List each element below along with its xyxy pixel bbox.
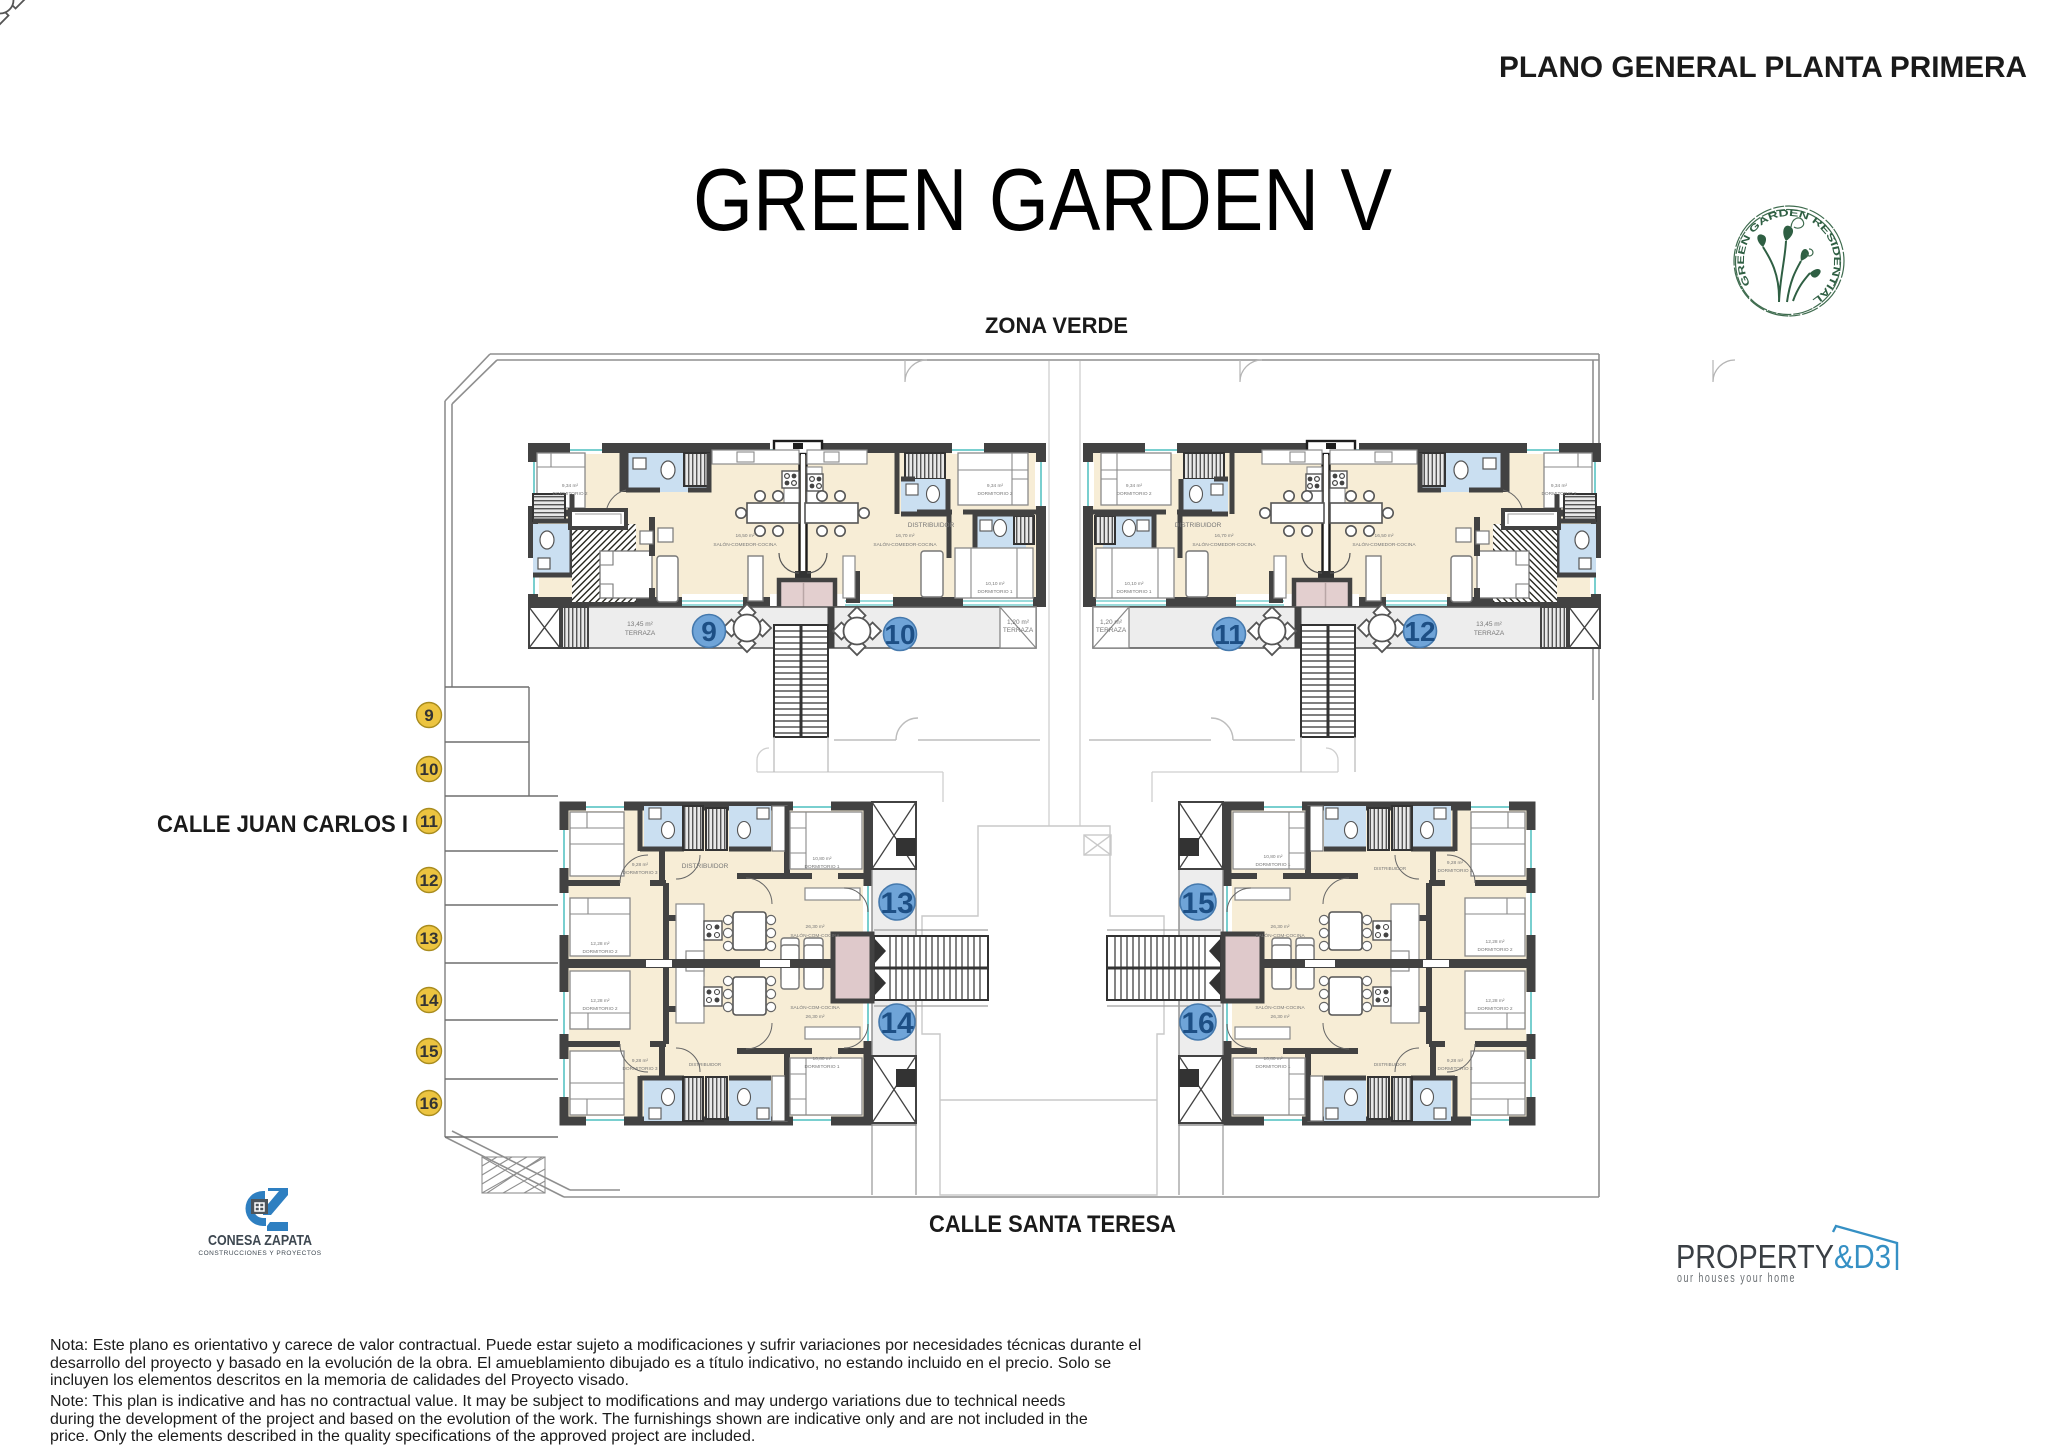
svg-text:10,80 m²: 10,80 m² xyxy=(813,1056,832,1062)
svg-text:DORMITORIO 1: DORMITORIO 1 xyxy=(1255,862,1290,868)
svg-text:10,10 m²: 10,10 m² xyxy=(986,581,1005,587)
svg-text:26,30 m²: 26,30 m² xyxy=(1271,924,1290,930)
svg-text:DORMITORIO 3: DORMITORIO 3 xyxy=(622,1066,657,1072)
svg-text:10,10 m²: 10,10 m² xyxy=(1125,581,1144,587)
svg-text:DISTRIBUIDOR: DISTRIBUIDOR xyxy=(1374,866,1407,871)
svg-text:9,28 m²: 9,28 m² xyxy=(632,862,649,868)
svg-text:12,28 m²: 12,28 m² xyxy=(591,941,610,947)
svg-text:SALÓN-COMEDOR-COCINA: SALÓN-COMEDOR-COCINA xyxy=(1352,541,1416,548)
svg-text:SALÓN-COMEDOR-COCINA: SALÓN-COMEDOR-COCINA xyxy=(1192,541,1256,548)
svg-text:&D3: &D3 xyxy=(1834,1238,1891,1275)
svg-text:9: 9 xyxy=(424,706,433,725)
svg-text:SALÓN-COM-COCINA: SALÓN-COM-COCINA xyxy=(790,932,840,939)
svg-text:16,50 m²: 16,50 m² xyxy=(736,533,755,539)
svg-text:10: 10 xyxy=(884,619,915,650)
svg-text:GREEN GARDEN V: GREEN GARDEN V xyxy=(693,150,1392,249)
svg-text:DISTRIBUIDOR: DISTRIBUIDOR xyxy=(682,863,729,870)
svg-text:DORMITORIO 1: DORMITORIO 1 xyxy=(804,864,839,870)
svg-text:DORMITORIO 2: DORMITORIO 2 xyxy=(1477,1006,1512,1012)
svg-text:PLANO GENERAL PLANTA PRIMERA: PLANO GENERAL PLANTA PRIMERA xyxy=(1499,51,2027,84)
svg-text:11: 11 xyxy=(420,812,438,831)
svg-text:13: 13 xyxy=(880,887,913,920)
svg-text:ZONA VERDE: ZONA VERDE xyxy=(985,313,1128,338)
svg-text:CONESA ZAPATA: CONESA ZAPATA xyxy=(208,1232,312,1249)
svg-text:TERRAZA: TERRAZA xyxy=(1003,627,1034,634)
svg-text:SALÓN-COMEDOR-COCINA: SALÓN-COMEDOR-COCINA xyxy=(713,541,777,548)
svg-text:16: 16 xyxy=(420,1094,439,1113)
svg-text:CALLE JUAN CARLOS I: CALLE JUAN CARLOS I xyxy=(157,811,408,838)
svg-text:13: 13 xyxy=(420,929,439,948)
svg-text:DISTRIBUIDOR: DISTRIBUIDOR xyxy=(908,522,955,529)
svg-text:9,34 m²: 9,34 m² xyxy=(1551,483,1568,489)
svg-text:DORMITORIO 2: DORMITORIO 2 xyxy=(582,1006,617,1012)
svg-text:DORMITORIO 1: DORMITORIO 1 xyxy=(1255,1064,1290,1070)
svg-text:9: 9 xyxy=(701,616,717,647)
svg-text:13,45 m²: 13,45 m² xyxy=(1476,621,1502,628)
svg-text:12,28 m²: 12,28 m² xyxy=(1486,939,1505,945)
svg-text:1,20 m²: 1,20 m² xyxy=(1007,619,1030,626)
svg-text:9,28 m²: 9,28 m² xyxy=(1447,1058,1464,1064)
svg-text:TERRAZA: TERRAZA xyxy=(625,630,656,637)
svg-text:10,80 m²: 10,80 m² xyxy=(1264,1056,1283,1062)
svg-text:DISTRIBUIDOR: DISTRIBUIDOR xyxy=(1175,522,1222,529)
svg-text:15: 15 xyxy=(420,1042,439,1061)
svg-text:DISTRIBUIDOR: DISTRIBUIDOR xyxy=(1374,1062,1407,1067)
svg-text:DORMITORIO 1: DORMITORIO 1 xyxy=(804,1064,839,1070)
svg-text:DORMITORIO 2: DORMITORIO 2 xyxy=(977,491,1012,497)
svg-text:12,28 m²: 12,28 m² xyxy=(1486,998,1505,1004)
svg-text:14: 14 xyxy=(420,991,439,1010)
svg-text:13,45 m²: 13,45 m² xyxy=(627,621,653,628)
svg-text:CONSTRUCCIONES Y PROYECTOS: CONSTRUCCIONES Y PROYECTOS xyxy=(198,1250,321,1257)
svg-text:9,34 m²: 9,34 m² xyxy=(1126,483,1143,489)
svg-text:DORMITORIO 2: DORMITORIO 2 xyxy=(1541,491,1576,497)
svg-text:26,30 m²: 26,30 m² xyxy=(1271,1014,1290,1020)
svg-text:TERRAZA: TERRAZA xyxy=(1474,630,1505,637)
svg-text:9,28 m²: 9,28 m² xyxy=(632,1058,649,1064)
svg-text:DORMITORIO 3: DORMITORIO 3 xyxy=(1437,1066,1472,1072)
svg-text:DORMITORIO 3: DORMITORIO 3 xyxy=(1437,868,1472,874)
svg-text:12: 12 xyxy=(420,871,439,890)
svg-text:14: 14 xyxy=(880,1007,914,1040)
svg-text:SALÓN-COMEDOR-COCINA: SALÓN-COMEDOR-COCINA xyxy=(873,541,937,548)
svg-text:DORMITORIO 2: DORMITORIO 2 xyxy=(1477,947,1512,953)
svg-text:our houses your home: our houses your home xyxy=(1677,1270,1796,1285)
svg-text:DORMITORIO 1: DORMITORIO 1 xyxy=(1116,589,1151,595)
svg-text:16,50 m²: 16,50 m² xyxy=(1375,533,1394,539)
svg-text:12: 12 xyxy=(1404,616,1435,647)
svg-text:11: 11 xyxy=(1214,619,1244,650)
svg-text:16,70 m²: 16,70 m² xyxy=(896,533,915,539)
svg-text:10: 10 xyxy=(420,760,439,779)
svg-text:SALÓN-COM-COCINA: SALÓN-COM-COCINA xyxy=(1255,1004,1305,1011)
svg-text:1,20 m²: 1,20 m² xyxy=(1100,619,1123,626)
svg-text:12,28 m²: 12,28 m² xyxy=(591,998,610,1004)
svg-text:DISTRIBUIDOR: DISTRIBUIDOR xyxy=(689,1062,722,1067)
svg-text:10,80 m²: 10,80 m² xyxy=(1264,854,1283,860)
svg-text:DORMITORIO 2: DORMITORIO 2 xyxy=(552,491,587,497)
svg-text:SALÓN-COM-COCINA: SALÓN-COM-COCINA xyxy=(790,1004,840,1011)
svg-text:16: 16 xyxy=(1181,1007,1214,1040)
svg-text:9,34 m²: 9,34 m² xyxy=(987,483,1004,489)
svg-text:CALLE SANTA TERESA: CALLE SANTA TERESA xyxy=(929,1211,1176,1238)
svg-text:10,80 m²: 10,80 m² xyxy=(813,856,832,862)
svg-text:DORMITORIO 1: DORMITORIO 1 xyxy=(977,589,1012,595)
svg-text:DORMITORIO 2: DORMITORIO 2 xyxy=(582,949,617,955)
svg-text:26,30 m²: 26,30 m² xyxy=(806,1014,825,1020)
svg-text:SALÓN-COM-COCINA: SALÓN-COM-COCINA xyxy=(1255,932,1305,939)
svg-text:15: 15 xyxy=(1181,887,1214,920)
svg-text:DORMITORIO 2: DORMITORIO 2 xyxy=(1116,491,1151,497)
svg-text:16,70 m²: 16,70 m² xyxy=(1215,533,1234,539)
svg-text:9,28 m²: 9,28 m² xyxy=(1447,860,1464,866)
svg-text:DORMITORIO 3: DORMITORIO 3 xyxy=(622,870,657,876)
svg-text:9,34 m²: 9,34 m² xyxy=(562,483,579,489)
svg-text:TERRAZA: TERRAZA xyxy=(1096,627,1127,634)
svg-text:26,30 m²: 26,30 m² xyxy=(806,924,825,930)
